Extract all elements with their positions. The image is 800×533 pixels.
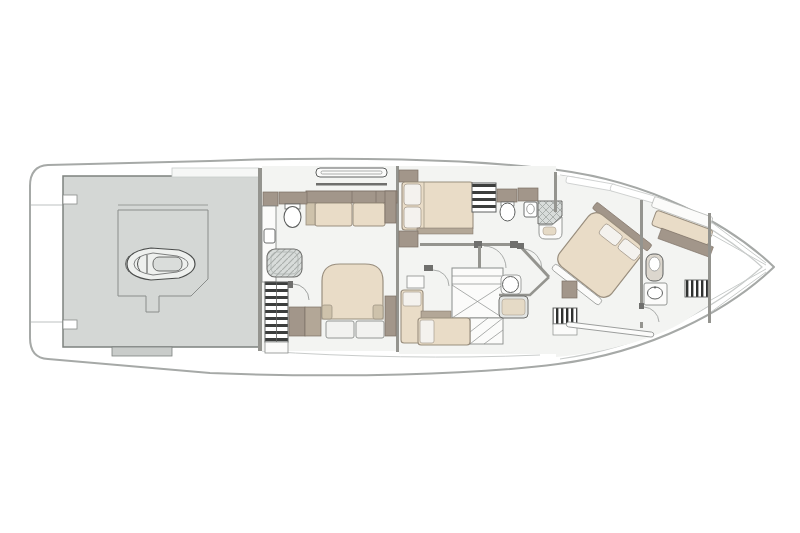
wall-mid-vip-top <box>554 172 557 212</box>
fwd-bath-faucet <box>654 287 656 289</box>
master-sofa-cushion-right <box>353 203 385 226</box>
vip-vent <box>553 308 577 324</box>
dayhead-toilet <box>500 203 515 221</box>
twin-pillow-vertical <box>403 292 421 306</box>
twin-seat <box>407 276 424 288</box>
lower-bath-shower-pad <box>502 299 525 315</box>
garage-deck-step-bottom <box>112 347 172 356</box>
master-foot-cushion-right <box>356 321 384 338</box>
fwd-bath-sink <box>648 287 663 299</box>
master-cabinet-bottom-right <box>385 296 396 336</box>
master-toilet <box>284 207 301 228</box>
master-window-bar <box>316 183 387 186</box>
master-cabinet-starboard <box>385 191 396 223</box>
master-bed-pad-left <box>322 305 332 319</box>
dayhead-counter-a <box>497 189 517 202</box>
master-foot-cushion-left <box>326 321 354 338</box>
guest-pillow-top <box>404 184 421 205</box>
wall-vip-bath-lower <box>640 322 643 328</box>
twin-pillow-horizontal <box>420 320 434 343</box>
bow-bulkhead <box>708 213 711 323</box>
garage-deck-step-top <box>172 168 259 177</box>
vip-door-hinge <box>517 243 524 249</box>
master-bath-sink <box>264 229 275 243</box>
master-bed-pad-right <box>373 305 383 319</box>
master-sofa-back <box>306 191 397 203</box>
guest-cabin-wall-tan <box>399 170 418 182</box>
jetski-seat <box>153 257 182 271</box>
master-door-hinge <box>288 281 293 288</box>
dayhead-tray-pad <box>543 227 556 235</box>
salon-stairs <box>472 183 496 212</box>
guest-wardrobe <box>399 231 418 247</box>
master-bath-wall-b <box>279 192 307 204</box>
guest-bed-footer <box>417 228 473 234</box>
corridor-wall-b <box>482 243 512 246</box>
lower-deck-plan <box>0 0 800 533</box>
fwd-bath-door-hinge <box>639 303 644 309</box>
master-sofa-cushion-left <box>315 203 352 226</box>
master-sofa-armrest <box>306 203 315 225</box>
twin-door-hinge <box>424 265 433 271</box>
master-shower <box>267 249 302 277</box>
yacht-floor-plan <box>0 0 800 533</box>
fwd-bath-vent <box>685 280 708 297</box>
bulkhead-garage-master <box>258 168 262 351</box>
master-stairs-base <box>265 342 288 353</box>
guest-pillow-bottom <box>404 207 421 228</box>
wall-vip-bath-upper <box>640 200 643 305</box>
main-stairs-box <box>452 268 503 318</box>
garage-notch-bottom <box>63 320 77 329</box>
master-cabinet-bottom-b <box>305 307 321 336</box>
master-bath-wall-a <box>263 192 278 206</box>
corridor-door-hinge-b <box>510 241 518 248</box>
fwd-bath-toilet-bowl <box>649 257 660 271</box>
dayhead-counter-b <box>518 188 538 201</box>
garage-notch-top <box>63 195 77 204</box>
corridor-wall-a <box>420 243 476 246</box>
vip-cabinet-corner <box>562 281 577 298</box>
master-skylight <box>316 168 387 177</box>
master-cabinet-bottom-a <box>289 307 305 336</box>
lower-bath-sink <box>503 277 519 293</box>
